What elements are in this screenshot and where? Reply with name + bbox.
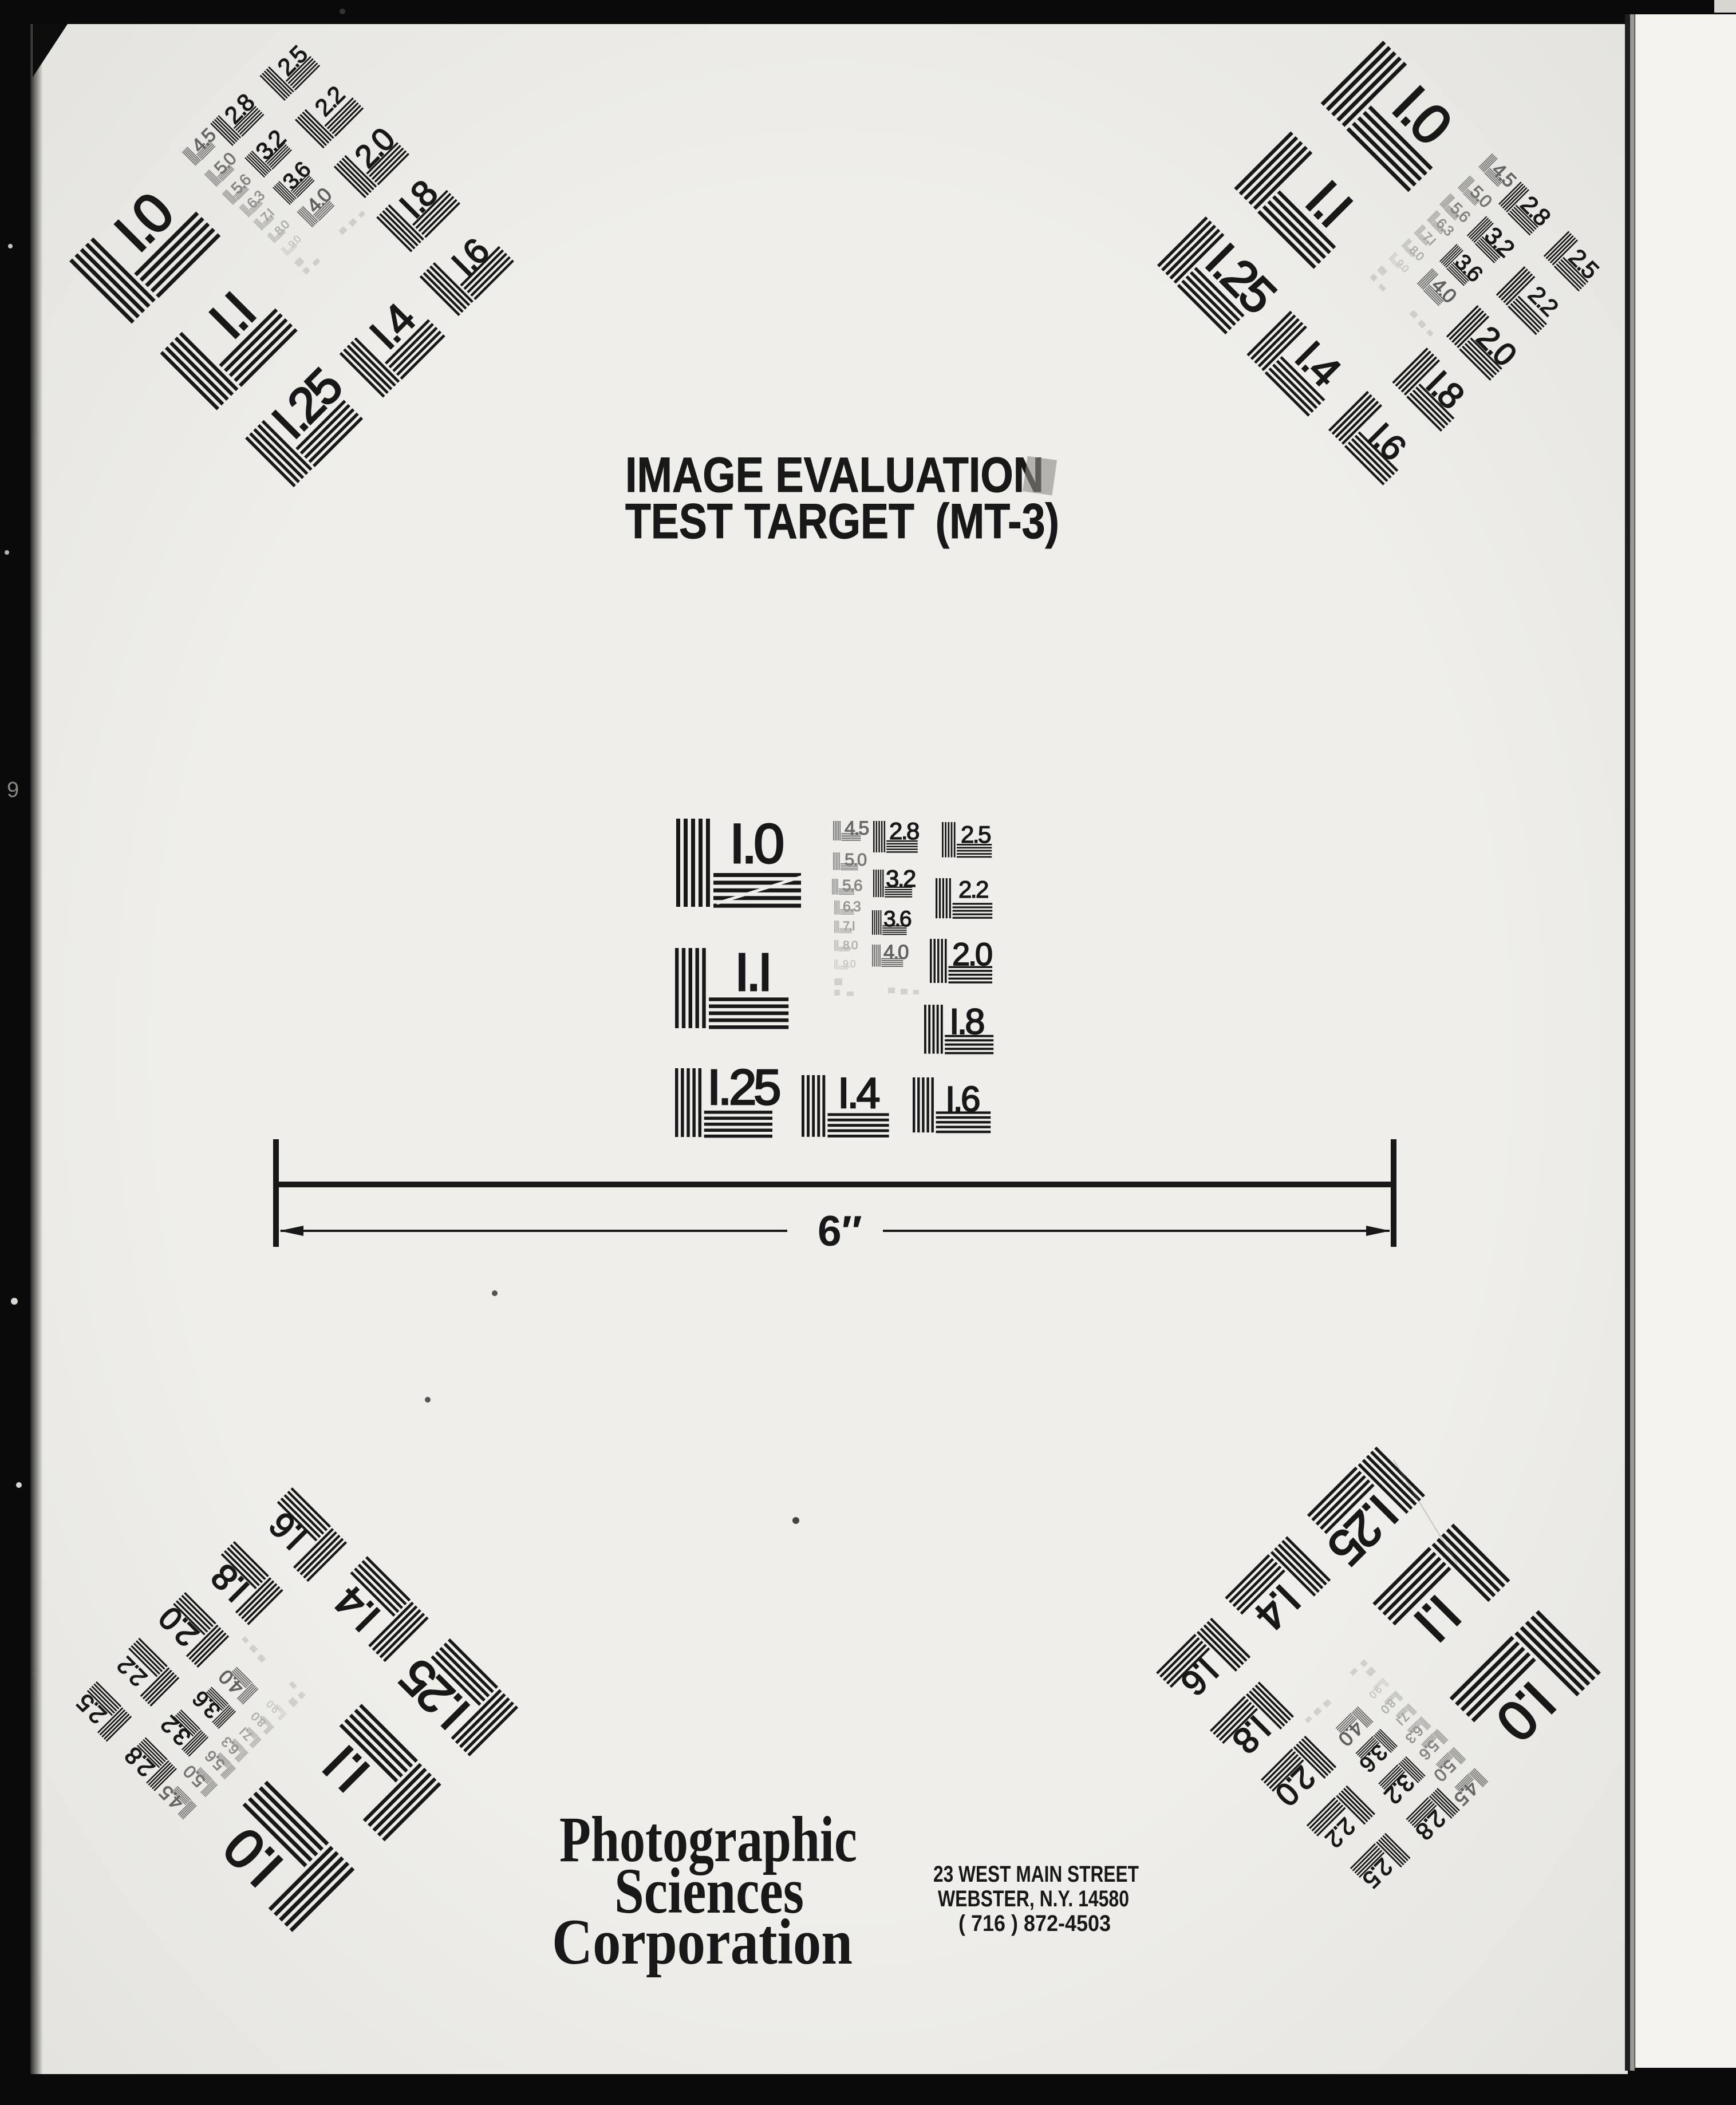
- svg-text:Corporation: Corporation: [552, 1906, 853, 1978]
- svg-text:6″: 6″: [818, 1207, 862, 1255]
- svg-text:TEST TARGET (MT-3): TEST TARGET (MT-3): [625, 494, 1059, 549]
- svg-text:23 WEST MAIN STREET: 23 WEST MAIN STREET: [933, 1862, 1139, 1887]
- svg-text:( 716 ) 872-4503: ( 716 ) 872-4503: [958, 1911, 1111, 1936]
- svg-text:9: 9: [7, 778, 19, 802]
- svg-text:WEBSTER, N.Y. 14580: WEBSTER, N.Y. 14580: [938, 1886, 1129, 1912]
